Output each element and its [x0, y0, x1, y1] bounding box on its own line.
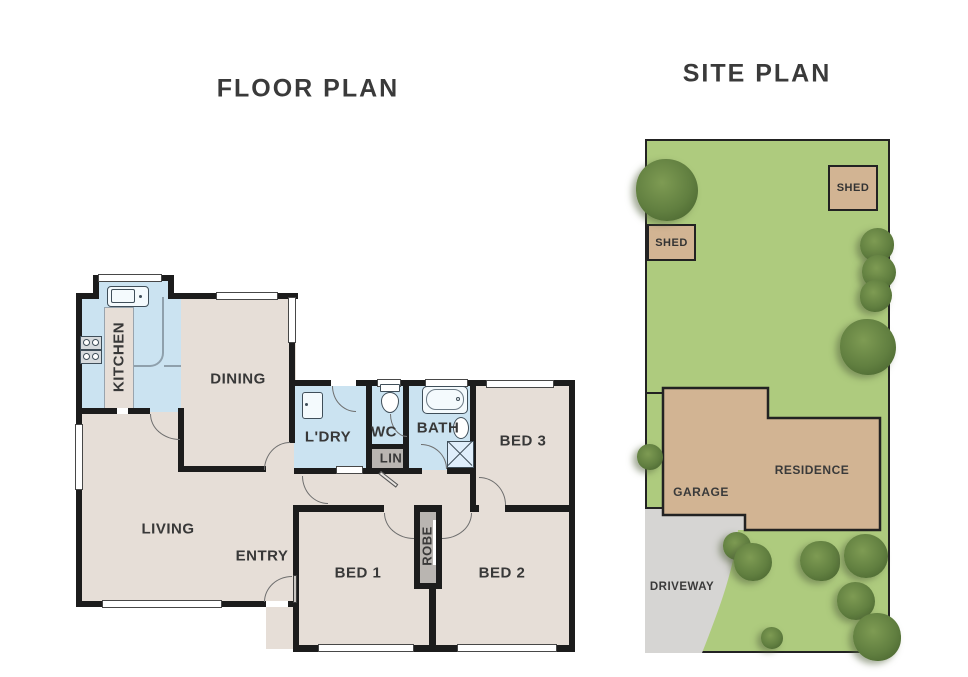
room-label-kitchen: KITCHEN [111, 322, 128, 392]
room-label-linen: LIN [380, 451, 402, 466]
window [318, 644, 414, 652]
kitchen-bench-outline [134, 297, 164, 367]
residence-outline [663, 388, 880, 530]
wall [569, 380, 575, 652]
burner [83, 353, 90, 360]
wall [429, 589, 436, 647]
garage-label: GARAGE [673, 485, 729, 499]
shed-left: SHED [647, 224, 696, 261]
door-opening [117, 408, 128, 414]
room-label-dining: DINING [210, 371, 266, 388]
kitchen-sink-bowl [111, 289, 135, 303]
tree [636, 159, 698, 221]
wall [295, 505, 384, 512]
wall [372, 444, 408, 449]
front-door-leaf [293, 575, 297, 603]
room-label-wc: WC [371, 424, 397, 441]
room-label-bed2: BED 2 [479, 565, 526, 582]
wall [408, 468, 422, 474]
room-label-entry: ENTRY [236, 548, 289, 565]
room-label-bed1: BED 1 [335, 565, 382, 582]
site-plan-title: SITE PLAN [683, 60, 832, 89]
window [98, 274, 162, 282]
tree [734, 543, 772, 581]
window [457, 644, 557, 652]
kitchen-bench-line [164, 365, 181, 367]
window [486, 380, 554, 388]
tree [853, 613, 901, 661]
tree [800, 541, 840, 581]
wall [372, 468, 408, 474]
wall [505, 505, 570, 512]
window [216, 292, 278, 300]
burner [92, 353, 99, 360]
tree [840, 319, 896, 375]
wall [178, 466, 266, 472]
bath-drain [456, 397, 460, 401]
toilet-cistern [380, 384, 400, 392]
shed-left-label: SHED [655, 237, 688, 249]
room-label-robe: ROBE [420, 526, 435, 566]
shower [447, 441, 474, 468]
window [75, 424, 83, 490]
driveway-label: DRIVEWAY [650, 581, 714, 593]
shed-right-label: SHED [837, 182, 870, 194]
tree [761, 627, 783, 649]
window [336, 466, 363, 474]
burner [92, 339, 99, 346]
window [102, 600, 222, 608]
wall [294, 468, 336, 474]
room-label-bed3: BED 3 [500, 433, 547, 450]
residence-label: RESIDENCE [775, 463, 850, 477]
room-label-bath: BATH [417, 420, 460, 437]
room-label-laundry: L'DRY [305, 429, 351, 446]
tree [637, 444, 663, 470]
wall [470, 505, 479, 512]
trough-drain [305, 403, 308, 406]
kitchen-tap [139, 295, 142, 298]
wall [414, 583, 442, 589]
window [288, 297, 296, 343]
floor-plan-title: FLOOR PLAN [217, 75, 400, 104]
floor-and-site-plan: FLOOR PLAN SITE PLAN [0, 0, 968, 677]
tree [844, 534, 888, 578]
shed-right: SHED [828, 165, 878, 211]
room-label-living: LIVING [141, 521, 194, 538]
wall [81, 408, 150, 414]
burner [83, 339, 90, 346]
